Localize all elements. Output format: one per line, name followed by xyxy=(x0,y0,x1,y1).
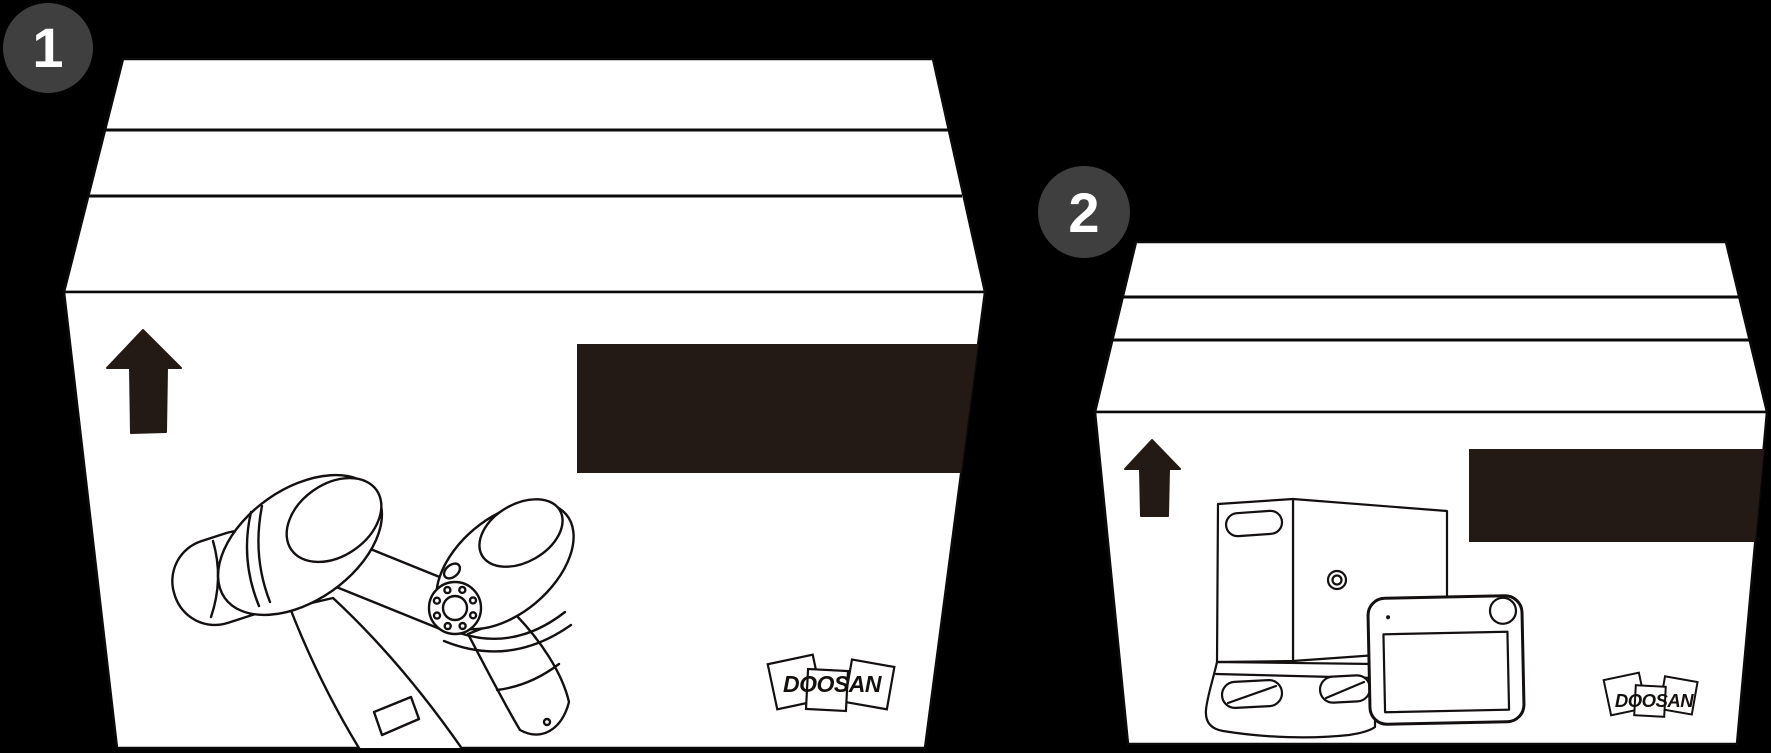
brand-wordmark: DOOSAN xyxy=(1615,690,1694,711)
box1-lid xyxy=(64,59,985,292)
packaging-illustration: DOOSAN 1 xyxy=(0,0,1771,753)
box2-group: DOOSAN xyxy=(1095,242,1767,744)
teach-pendant xyxy=(1368,595,1525,724)
packaging-scene: DOOSAN 1 xyxy=(0,0,1771,753)
box2-shipping-label-plate xyxy=(1469,449,1764,542)
controller-power-button-inner xyxy=(1333,576,1342,585)
pendant-screen xyxy=(1383,632,1509,713)
robot-tool-flange xyxy=(429,582,481,634)
box1-shipping-label-plate xyxy=(577,344,978,473)
controller-handle-slot xyxy=(1225,510,1282,537)
step-badge-1: 1 xyxy=(3,3,93,93)
badge-number: 2 xyxy=(1068,181,1099,244)
brand-wordmark: DOOSAN xyxy=(783,671,882,697)
box2-lid xyxy=(1095,242,1767,412)
box1-group: DOOSAN xyxy=(64,59,985,753)
pendant-camera-circle xyxy=(1490,598,1517,625)
badge-number: 1 xyxy=(32,16,63,79)
step-badge-2: 2 xyxy=(1038,166,1130,258)
